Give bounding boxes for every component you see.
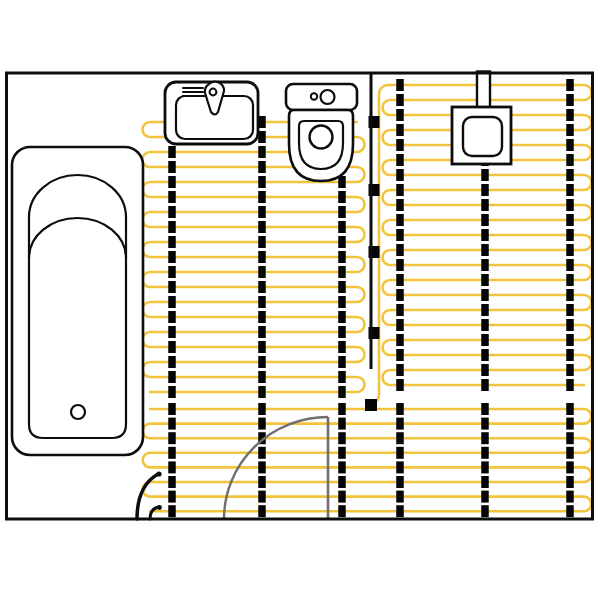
cable-clip <box>566 79 574 91</box>
cable-clip <box>396 364 404 376</box>
cable-clip <box>168 281 176 293</box>
cable-clip <box>396 139 404 151</box>
cable-clip <box>396 184 404 196</box>
cable-clip <box>396 229 404 241</box>
cable-clip <box>338 461 346 473</box>
cable-clip <box>566 432 574 444</box>
cable-clip <box>481 229 489 241</box>
cable-clip <box>566 109 574 121</box>
cable-clip <box>481 491 489 503</box>
cable-clip <box>258 341 266 353</box>
toilet-button-small <box>311 93 317 99</box>
power-lead-main-end-dot <box>156 471 161 476</box>
floor-drain-inner <box>463 117 502 156</box>
cable-clip <box>258 491 266 503</box>
cable-clip <box>338 447 346 459</box>
cable-clip <box>481 259 489 271</box>
cable-clip <box>168 146 176 158</box>
cable-clip <box>168 221 176 233</box>
cable-clip <box>258 161 266 173</box>
cable-clip <box>566 403 574 415</box>
cable-clip <box>481 476 489 488</box>
heating-cables-layer <box>143 85 592 511</box>
cable-clip <box>168 326 176 338</box>
cable-clip <box>396 124 404 136</box>
cable-clip <box>481 214 489 226</box>
cable-clip <box>396 199 404 211</box>
cable-clip <box>168 386 176 398</box>
cable-clip <box>481 319 489 331</box>
cable-clip <box>481 184 489 196</box>
cable-clip <box>258 356 266 368</box>
cable-clip <box>481 169 489 181</box>
cable-clip <box>258 236 266 248</box>
cable-clip <box>481 349 489 361</box>
cable-clip <box>481 304 489 316</box>
cable-clip <box>168 311 176 323</box>
cable-clip <box>258 505 266 517</box>
cable-clip <box>396 274 404 286</box>
cable-clip <box>258 266 266 278</box>
cable-clip <box>338 236 346 248</box>
cable-clip <box>481 432 489 444</box>
cable-clip <box>338 418 346 430</box>
floor-plan-svg <box>0 0 600 600</box>
cable-clip <box>168 371 176 383</box>
cable-clip <box>481 244 489 256</box>
cable-clip <box>338 221 346 233</box>
cable-clip <box>168 403 176 415</box>
cable-clip <box>168 341 176 353</box>
cable-clip <box>338 341 346 353</box>
cable-clip <box>338 403 346 415</box>
cable-clip <box>396 154 404 166</box>
cable-clip <box>566 184 574 196</box>
cable-end-terminal <box>365 399 377 411</box>
cable-clip <box>168 251 176 263</box>
cable-clip <box>566 94 574 106</box>
bathroom-heating-plan <box>0 0 600 600</box>
cable-clip <box>566 364 574 376</box>
toilet-button-large <box>321 90 335 104</box>
cable-clip <box>338 296 346 308</box>
cable-clip <box>566 304 574 316</box>
cable-clip <box>481 418 489 430</box>
cable-clip <box>396 214 404 226</box>
cable-clip <box>566 461 574 473</box>
cable-clip <box>481 274 489 286</box>
cable-clip <box>481 379 489 391</box>
cable-clip <box>396 109 404 121</box>
cable-clip <box>168 191 176 203</box>
cable-clip <box>168 461 176 473</box>
cable-clip <box>481 505 489 517</box>
cable-clip <box>396 289 404 301</box>
cable-clip <box>168 356 176 368</box>
bathtub-drain <box>71 405 85 419</box>
cable-clip <box>481 289 489 301</box>
cable-clip <box>396 79 404 91</box>
cable-clip <box>566 505 574 517</box>
cable-clip <box>168 236 176 248</box>
cable-clip <box>481 334 489 346</box>
cable-clip <box>338 386 346 398</box>
cable-clip <box>258 326 266 338</box>
cable-clip <box>258 176 266 188</box>
cable-clip <box>258 191 266 203</box>
bathtub-basin <box>29 175 126 438</box>
cable-clip <box>258 251 266 263</box>
cable-clip <box>566 139 574 151</box>
cable-clip <box>396 505 404 517</box>
cable-clip <box>258 447 266 459</box>
cable-clip <box>258 296 266 308</box>
cable-clip <box>338 505 346 517</box>
cable-clip <box>168 266 176 278</box>
cable-clip <box>566 349 574 361</box>
cable-clip <box>396 94 404 106</box>
sink-faucet-cap <box>210 89 217 96</box>
cable-clip <box>396 259 404 271</box>
cable-clip <box>481 461 489 473</box>
cable-clip <box>258 221 266 233</box>
cable-clip <box>396 244 404 256</box>
cable-clip <box>338 356 346 368</box>
cable-clip <box>396 169 404 181</box>
cable-clip <box>396 403 404 415</box>
cable-clip <box>338 266 346 278</box>
cable-clip <box>258 386 266 398</box>
cable-clip <box>258 371 266 383</box>
cable-clip <box>566 289 574 301</box>
cable-clip <box>168 447 176 459</box>
cable-clip <box>566 124 574 136</box>
cable-clip <box>258 461 266 473</box>
cable-clip <box>258 146 266 158</box>
cable-clip <box>338 432 346 444</box>
cable-clip <box>566 244 574 256</box>
cable-clip <box>566 154 574 166</box>
cable-clip <box>338 281 346 293</box>
cable-clip <box>566 447 574 459</box>
cable-clip <box>258 206 266 218</box>
cable-clip <box>168 206 176 218</box>
cable-clip <box>566 379 574 391</box>
cable-clip <box>566 199 574 211</box>
cable-clip <box>481 403 489 415</box>
cable-clip <box>566 169 574 181</box>
cable-clip <box>338 311 346 323</box>
cable-clip <box>396 379 404 391</box>
cable-clip <box>338 476 346 488</box>
cable-clip <box>258 281 266 293</box>
cable-clip <box>168 296 176 308</box>
cable-clip <box>338 191 346 203</box>
cable-clip <box>566 418 574 430</box>
cable-clip <box>396 418 404 430</box>
cable-clip <box>396 304 404 316</box>
cable-clip <box>566 274 574 286</box>
cable-clip <box>168 476 176 488</box>
cable-clip <box>396 476 404 488</box>
shower-supply-pipe <box>477 72 490 110</box>
cable-clip <box>168 432 176 444</box>
cable-clip <box>168 161 176 173</box>
cable-clip <box>168 491 176 503</box>
cable-clip <box>566 214 574 226</box>
cable-clip <box>258 311 266 323</box>
cable-clip <box>338 491 346 503</box>
cable-clip <box>168 418 176 430</box>
cable-clip <box>396 432 404 444</box>
cable-clip <box>338 206 346 218</box>
cable-clip <box>168 505 176 517</box>
cable-clip <box>396 334 404 346</box>
cable-clip <box>566 334 574 346</box>
cable-clip <box>396 461 404 473</box>
cable-clip <box>258 476 266 488</box>
cable-clip <box>338 251 346 263</box>
cable-clip <box>396 447 404 459</box>
cable-clip <box>396 319 404 331</box>
power-lead-small-end-dot <box>157 505 162 510</box>
cable-clip <box>338 326 346 338</box>
cable-clip <box>168 176 176 188</box>
cable-clip <box>258 418 266 430</box>
heating-zone-bottom-cable <box>143 409 592 511</box>
cable-clip <box>566 259 574 271</box>
cable-clip <box>566 229 574 241</box>
cable-clip <box>566 476 574 488</box>
cable-clip <box>258 403 266 415</box>
cable-clip <box>396 491 404 503</box>
cable-clip <box>338 371 346 383</box>
cable-clip <box>566 319 574 331</box>
cable-clip <box>481 199 489 211</box>
cable-clip <box>481 364 489 376</box>
cable-clip <box>481 447 489 459</box>
cable-clip <box>396 349 404 361</box>
cable-clip <box>566 491 574 503</box>
toilet-flush-hole <box>310 126 333 149</box>
